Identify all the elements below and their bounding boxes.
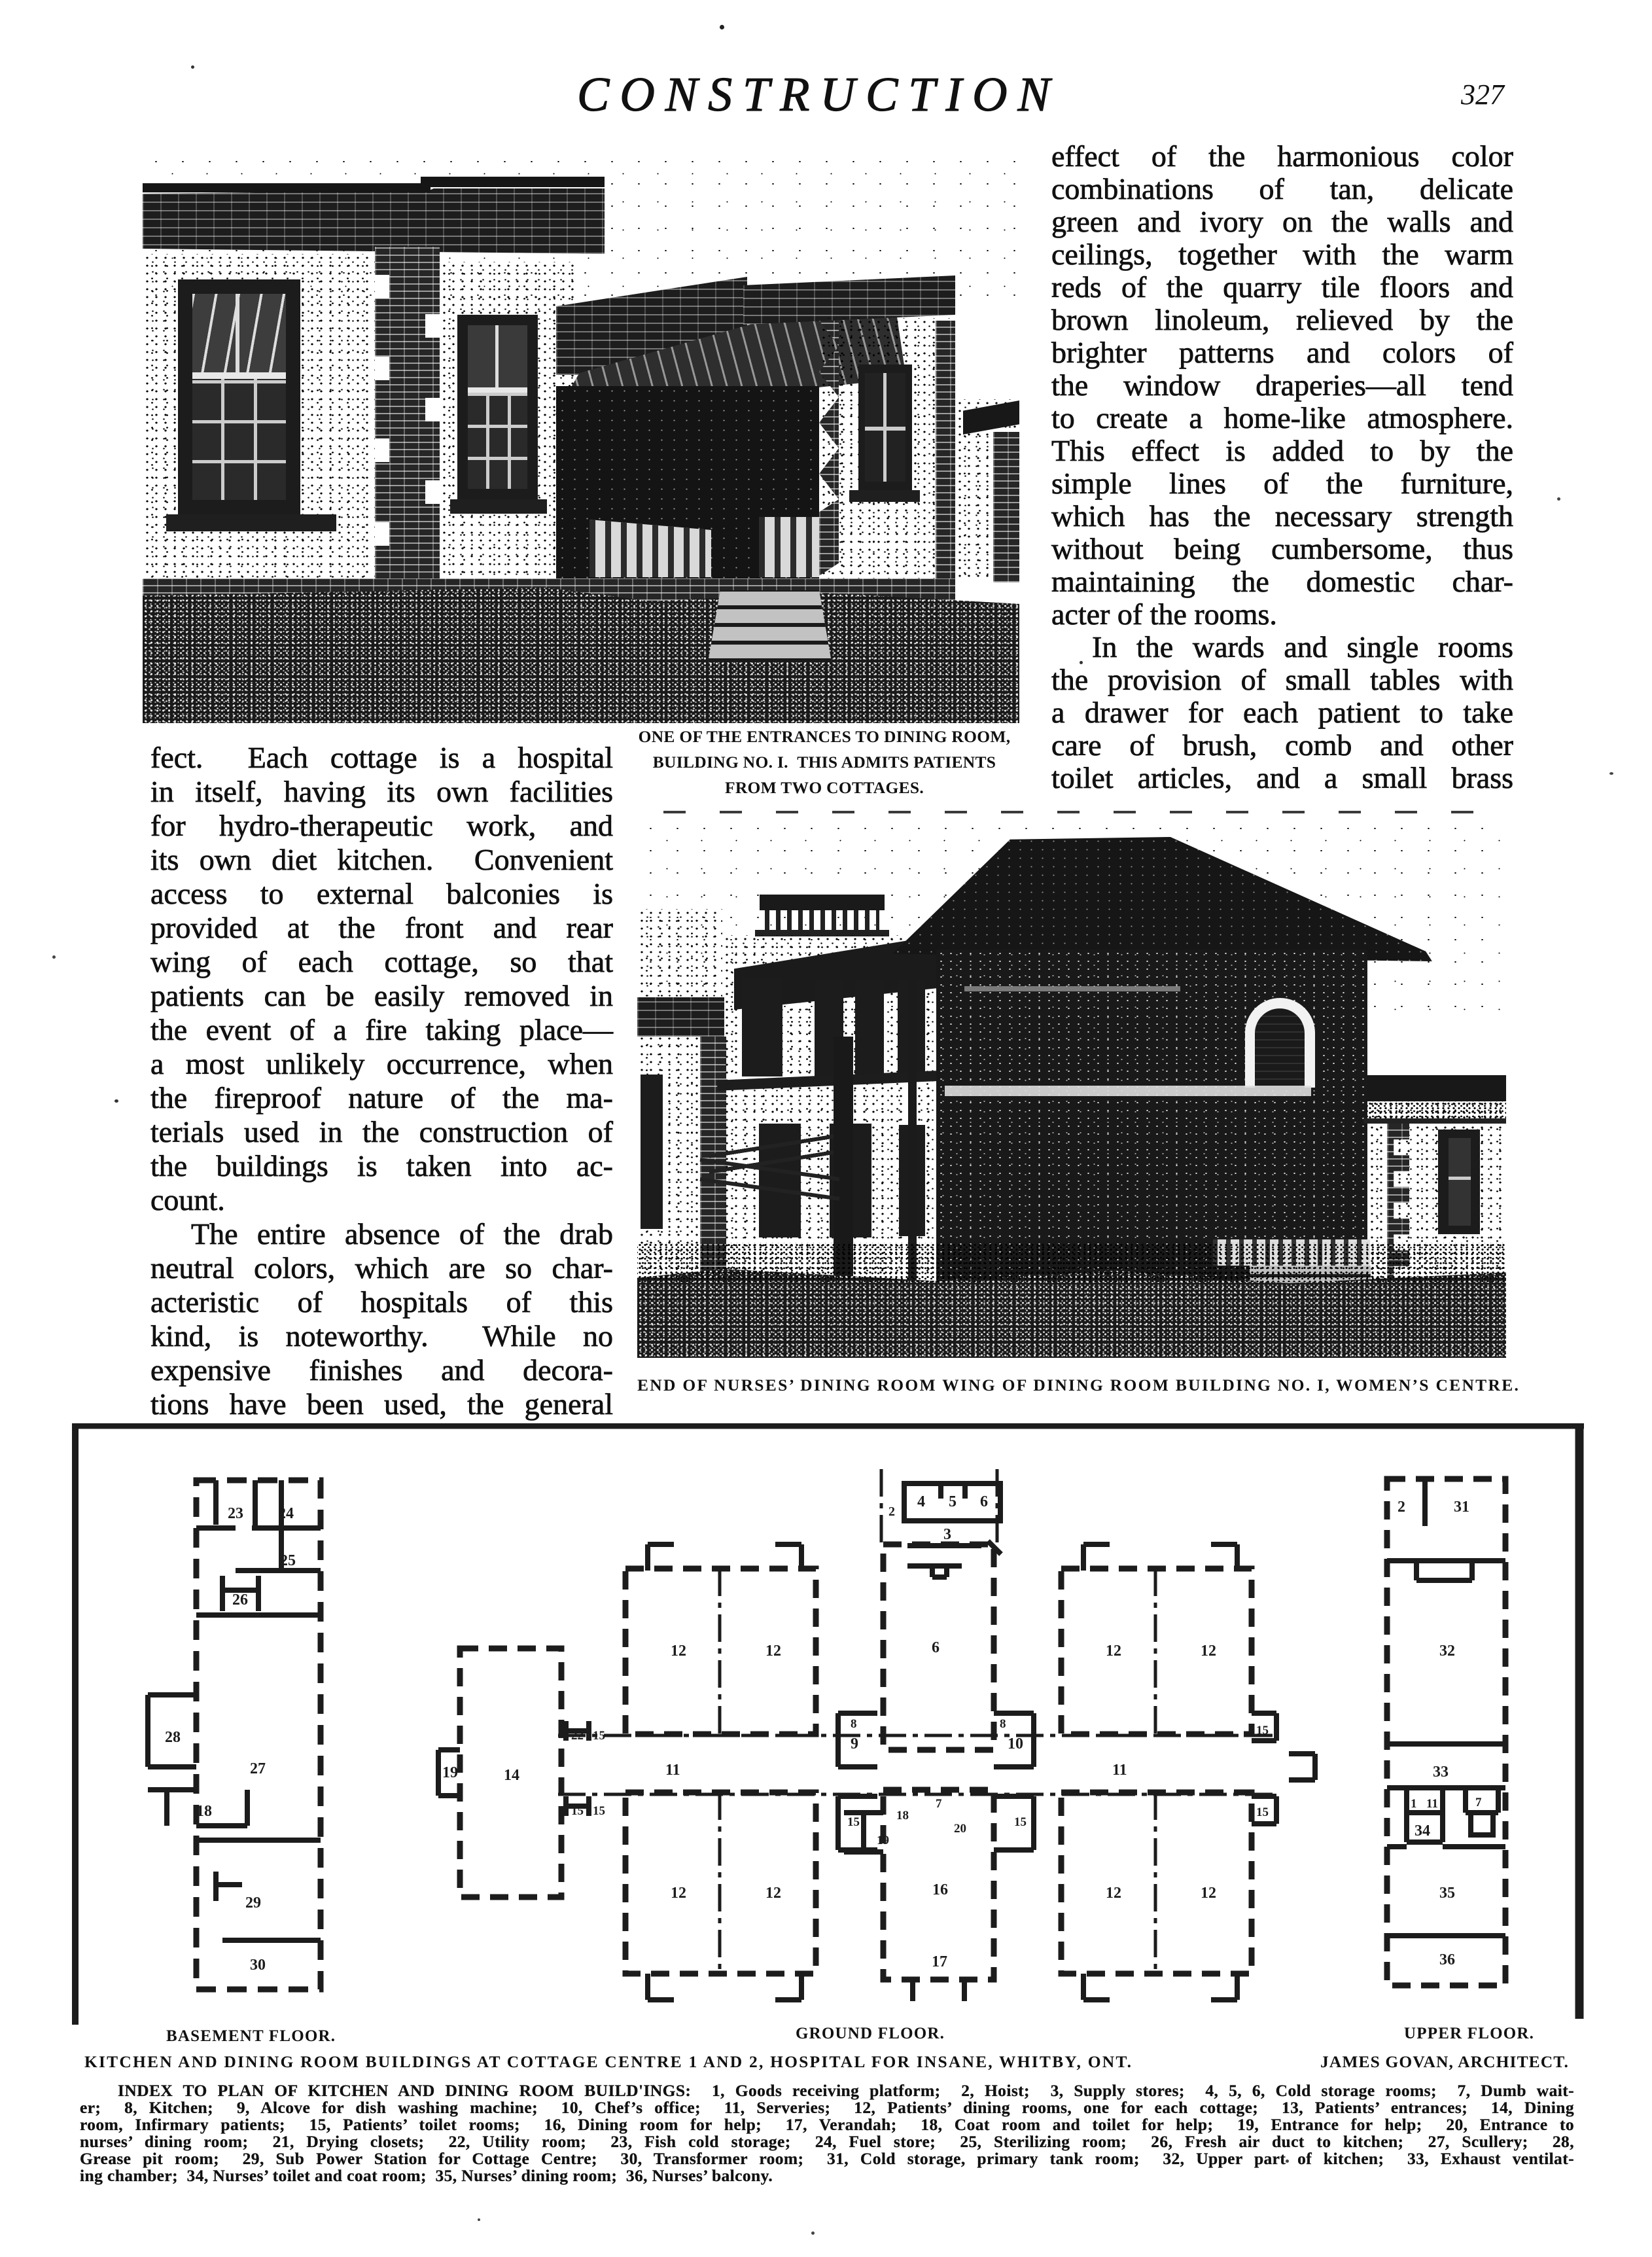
svg-text:4: 4 [917, 1493, 925, 1510]
svg-text:15: 15 [571, 1804, 584, 1818]
svg-text:18: 18 [896, 1809, 909, 1822]
svg-text:6: 6 [932, 1639, 940, 1656]
svg-text:12: 12 [1106, 1643, 1121, 1660]
svg-text:11: 11 [665, 1762, 680, 1779]
svg-text:1: 1 [1411, 1797, 1417, 1811]
svg-text:2: 2 [1397, 1499, 1405, 1516]
svg-text:5: 5 [949, 1493, 957, 1510]
svg-text:8: 8 [1000, 1717, 1006, 1731]
svg-text:12: 12 [1201, 1885, 1216, 1902]
svg-text:15: 15 [1014, 1815, 1027, 1829]
svg-text:12: 12 [671, 1643, 686, 1660]
svg-text:12: 12 [1106, 1885, 1121, 1902]
svg-text:15: 15 [593, 1729, 605, 1743]
svg-text:15: 15 [593, 1804, 605, 1818]
svg-text:18: 18 [196, 1803, 212, 1820]
svg-text:12: 12 [671, 1885, 686, 1902]
svg-text:14: 14 [504, 1767, 519, 1784]
svg-text:32: 32 [1439, 1643, 1455, 1660]
svg-text:23: 23 [228, 1505, 243, 1522]
svg-text:28: 28 [165, 1729, 181, 1746]
svg-text:35: 35 [1439, 1885, 1455, 1902]
svg-text:9: 9 [851, 1735, 858, 1752]
svg-text:15: 15 [847, 1815, 860, 1829]
svg-text:6: 6 [980, 1493, 988, 1510]
svg-text:19: 19 [442, 1764, 458, 1781]
svg-text:17: 17 [932, 1953, 947, 1970]
svg-text:10: 10 [1008, 1735, 1023, 1752]
svg-text:26: 26 [232, 1591, 248, 1608]
svg-text:36: 36 [1439, 1951, 1455, 1968]
svg-text:15: 15 [1256, 1724, 1269, 1737]
svg-text:16: 16 [932, 1881, 948, 1898]
svg-text:7: 7 [936, 1797, 942, 1811]
svg-text:8: 8 [851, 1717, 857, 1731]
svg-text:31: 31 [1454, 1499, 1469, 1516]
svg-text:29: 29 [245, 1894, 261, 1911]
svg-text:12: 12 [765, 1643, 781, 1660]
svg-text:15: 15 [1256, 1805, 1269, 1819]
svg-text:22: 22 [571, 1729, 584, 1743]
svg-text:25: 25 [280, 1552, 296, 1569]
svg-text:27: 27 [250, 1760, 266, 1777]
svg-text:11: 11 [1426, 1797, 1438, 1811]
svg-text:12: 12 [1201, 1643, 1216, 1660]
svg-text:3: 3 [943, 1526, 951, 1543]
svg-text:12: 12 [765, 1885, 781, 1902]
svg-text:34: 34 [1415, 1822, 1430, 1839]
svg-text:30: 30 [250, 1957, 266, 1974]
svg-text:7: 7 [1475, 1796, 1482, 1809]
svg-text:2: 2 [888, 1504, 895, 1519]
svg-text:11: 11 [1112, 1762, 1127, 1779]
svg-text:24: 24 [278, 1505, 294, 1522]
svg-text:20: 20 [954, 1822, 966, 1836]
svg-text:33: 33 [1433, 1764, 1449, 1781]
svg-text:19: 19 [877, 1834, 889, 1847]
